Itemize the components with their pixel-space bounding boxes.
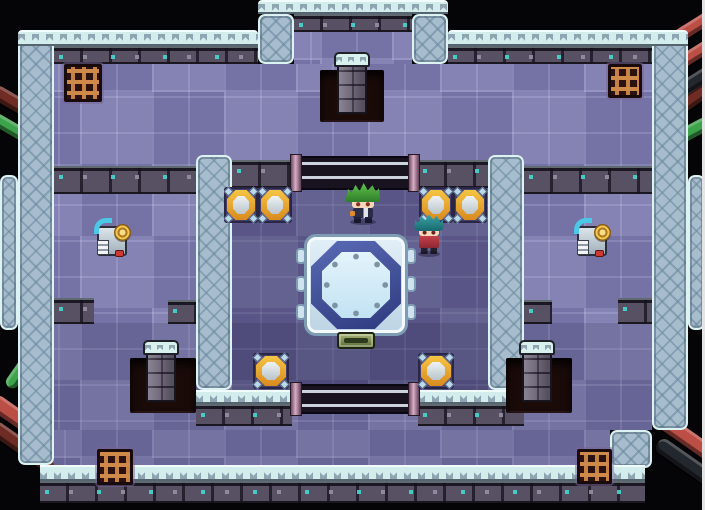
character-body — [419, 236, 439, 248]
switch-plate-bottom-right[interactable] — [418, 353, 454, 389]
outer-wall-step-bottom-right — [610, 430, 652, 468]
machine-tube — [94, 218, 112, 234]
character-hair — [346, 183, 380, 202]
pillar-top — [337, 52, 367, 114]
pillar-bottom-left — [146, 340, 176, 402]
grate-bottom-right — [577, 449, 612, 484]
character-green-hair[interactable] — [346, 183, 380, 223]
central-platform[interactable] — [304, 234, 408, 336]
outer-wall-right — [652, 30, 688, 430]
right-alcove-bottom-stub-inner — [524, 300, 552, 324]
platform-side-tab — [296, 276, 306, 292]
right-alcove-bottom-stub-outer — [618, 298, 652, 324]
top-bump-cap — [258, 0, 448, 14]
machine-valve — [115, 250, 124, 257]
switch-plate-top-right-2[interactable] — [453, 187, 487, 223]
inner-room-bottom-trim-left — [196, 404, 292, 426]
character-teal-hair[interactable] — [414, 213, 444, 255]
platform-octagon-core — [322, 252, 390, 318]
machine-label-panel — [577, 240, 589, 255]
grate-top-right — [608, 64, 642, 98]
plate-core — [427, 362, 445, 380]
left-alcove-bottom-stub-outer — [54, 298, 94, 324]
character-legs — [354, 217, 372, 223]
machine-tube — [574, 218, 592, 234]
top-bump-wall-left — [258, 14, 294, 64]
left-alcove-bottom-stub-inner — [168, 300, 196, 324]
outer-wall-left — [18, 30, 54, 465]
switch-plate-top-left-1[interactable] — [224, 187, 258, 223]
outer-wall-left-bump — [0, 175, 18, 330]
platform-hatch-handle[interactable] — [337, 332, 375, 349]
inner-room-top-trim-left — [232, 160, 292, 188]
pillar-cap — [143, 340, 179, 355]
character-hair — [414, 213, 444, 231]
right-alcove-top-trim — [524, 166, 652, 194]
machine-coil — [114, 224, 131, 241]
gate-rail-bottom[interactable] — [292, 384, 418, 414]
inner-room-top-trim-right — [418, 160, 488, 188]
left-alcove-top-trim — [54, 166, 196, 194]
platform-side-tab — [406, 276, 416, 292]
grate-bottom-left — [97, 449, 133, 485]
inner-room-bottom-cap-left — [196, 390, 292, 404]
machine-right[interactable] — [575, 220, 611, 258]
top-bump-wall-right — [412, 14, 448, 64]
top-wall-cap-right — [448, 30, 688, 46]
platform-side-tab — [296, 304, 306, 320]
plate-core — [262, 362, 280, 380]
platform-side-tab — [296, 248, 306, 264]
machine-label-panel — [97, 240, 109, 255]
pillar-shaft — [146, 351, 176, 402]
character-legs — [421, 248, 437, 254]
top-wall-trim-left — [54, 46, 258, 64]
platform-side-tab — [406, 304, 416, 320]
inner-room-wall-right — [488, 155, 524, 390]
pillar-cap — [519, 340, 555, 355]
machine-left[interactable] — [95, 220, 131, 258]
switch-plate-top-left-2[interactable] — [258, 187, 292, 223]
grate-top-left — [64, 64, 102, 102]
switch-plate-bottom-left[interactable] — [253, 353, 289, 389]
bottom-hall-tint-lower — [54, 430, 610, 465]
machine-coil — [594, 224, 611, 241]
pillar-bottom-right — [522, 340, 552, 402]
pillar-cap — [334, 52, 370, 67]
machine-valve — [595, 250, 604, 257]
game-viewport[interactable] — [0, 0, 705, 510]
pillar-shaft — [337, 63, 367, 114]
top-wall-trim-right — [448, 46, 652, 64]
top-wall-cap-left — [18, 30, 258, 46]
top-bump-trim — [294, 14, 412, 32]
pillar-shaft — [522, 351, 552, 402]
